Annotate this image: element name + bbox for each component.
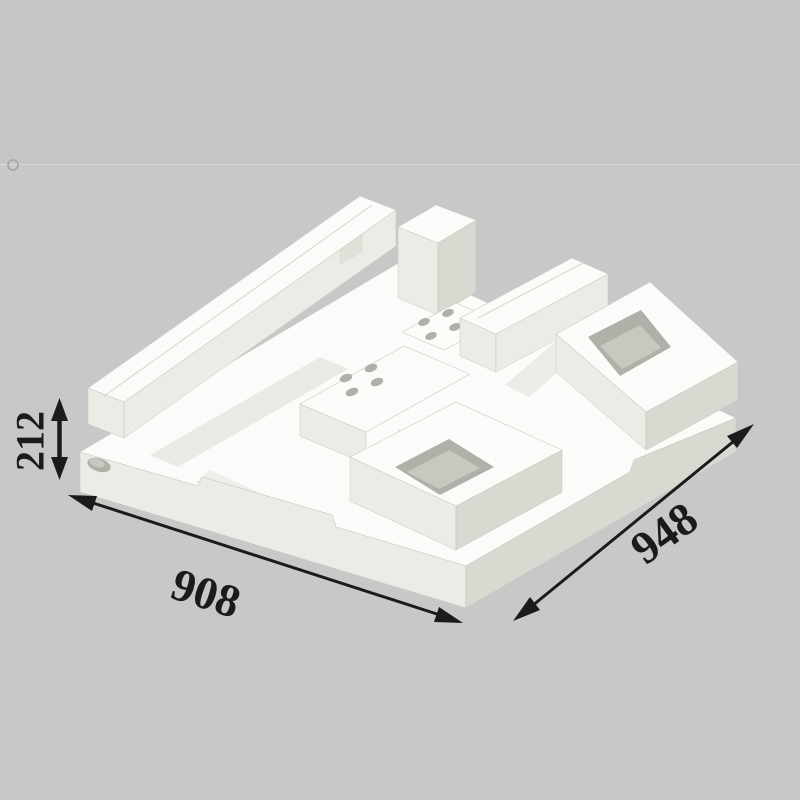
dimension-height-label: 212 [8, 411, 53, 471]
foam-insert-drawing: 212 908 948 [0, 0, 800, 800]
background-upper [0, 0, 800, 164]
technical-drawing-page: 212 908 948 [0, 0, 800, 800]
